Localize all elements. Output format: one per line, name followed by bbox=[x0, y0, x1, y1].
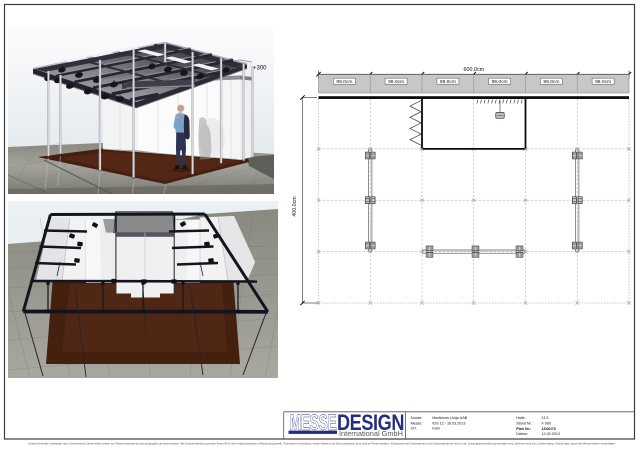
svg-text:11.3: 11.3 bbox=[542, 416, 549, 420]
svg-text:99.0cm: 99.0cm bbox=[388, 79, 404, 85]
svg-text:Datum:: Datum: bbox=[516, 432, 528, 436]
svg-text:Köln: Köln bbox=[432, 426, 439, 430]
svg-text:Kunde:: Kunde: bbox=[411, 416, 423, 420]
svg-text:F 060: F 060 bbox=[542, 422, 551, 426]
svg-text:13\02\76: 13\02\76 bbox=[542, 427, 556, 431]
svg-text:Stand Nr.:: Stand Nr.: bbox=[516, 422, 532, 426]
svg-text:Medicinos Linija UAB: Medicinos Linija UAB bbox=[432, 416, 467, 420]
svg-text:Plan Nr.:: Plan Nr.: bbox=[516, 427, 531, 431]
svg-text:Ort:: Ort: bbox=[411, 426, 417, 430]
svg-text:Unsere Entwürfe unterliegen de: Unsere Entwürfe unterliegen dem Urheberr… bbox=[28, 441, 616, 445]
svg-text:600.0cm: 600.0cm bbox=[463, 67, 484, 73]
svg-text:Halle:: Halle: bbox=[516, 416, 525, 420]
svg-text:International GmbH: International GmbH bbox=[339, 429, 403, 438]
svg-text:12.02.2013: 12.02.2013 bbox=[542, 432, 560, 436]
svg-text:99.0cm: 99.0cm bbox=[595, 79, 611, 85]
svg-text:99.0cm: 99.0cm bbox=[440, 79, 456, 85]
svg-text:99.0cm: 99.0cm bbox=[543, 79, 559, 85]
svg-text:400.0cm: 400.0cm bbox=[292, 196, 298, 217]
svg-text:Messe:: Messe: bbox=[411, 421, 423, 425]
svg-text:99.0cm: 99.0cm bbox=[492, 79, 508, 85]
svg-text:+300: +300 bbox=[253, 66, 267, 72]
svg-text:99.0cm: 99.0cm bbox=[336, 79, 352, 85]
svg-text:IDS 12.- 16.03.2013: IDS 12.- 16.03.2013 bbox=[432, 421, 465, 425]
